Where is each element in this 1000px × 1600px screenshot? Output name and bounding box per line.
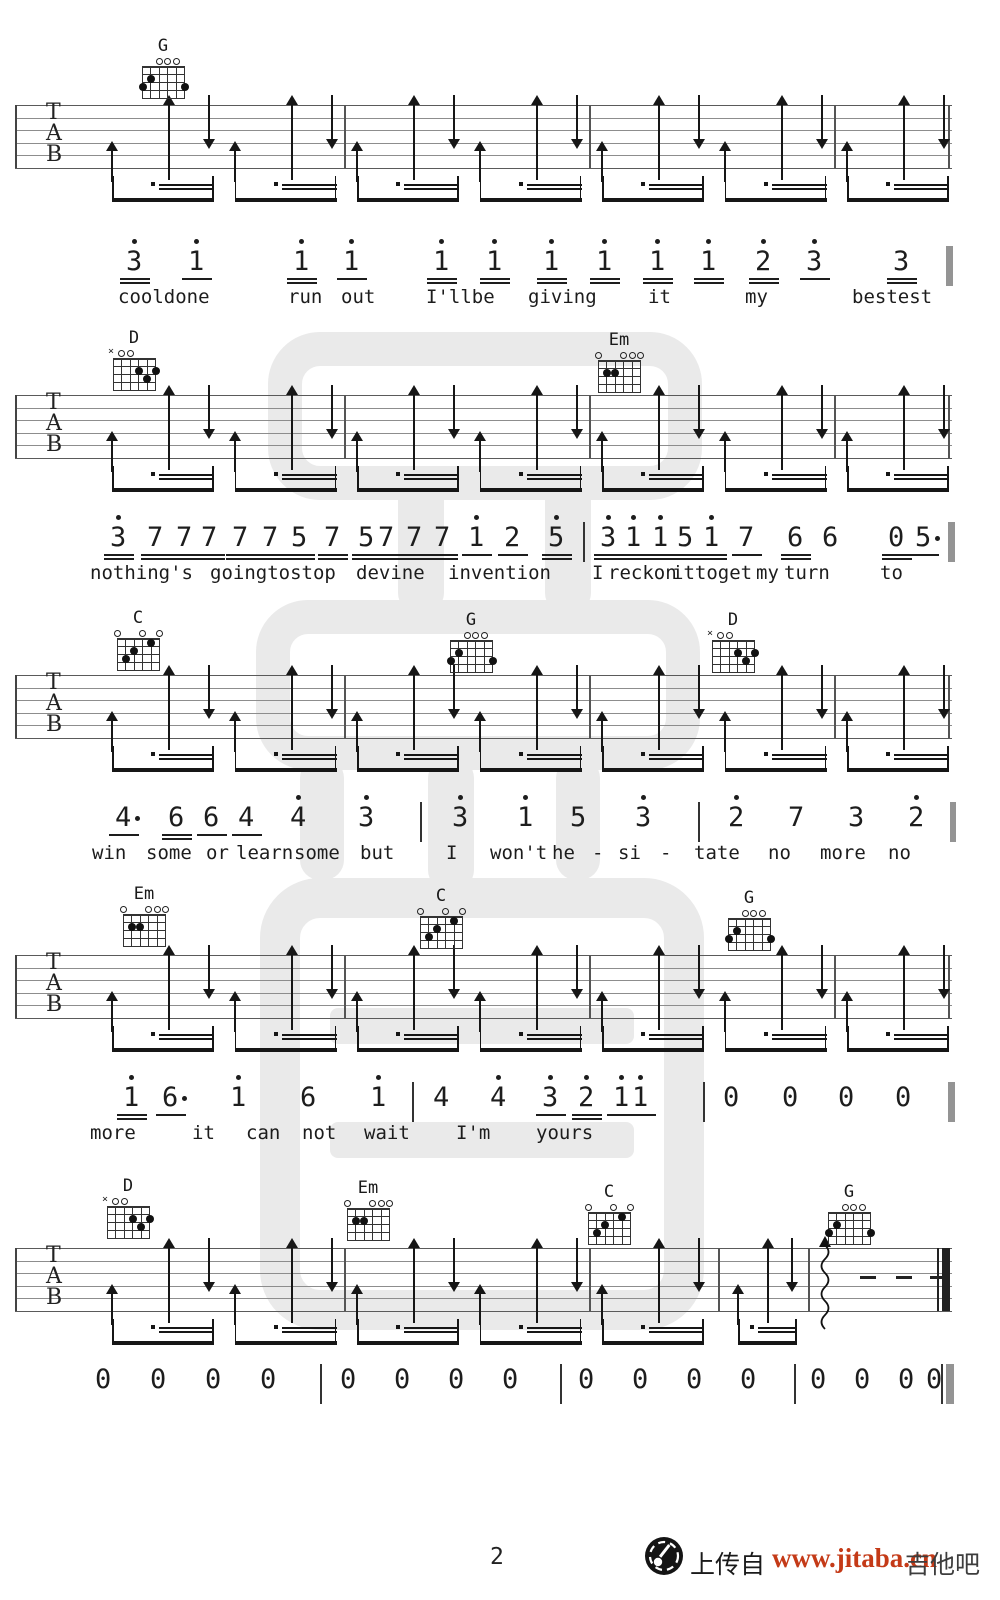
finger-dot (611, 369, 619, 377)
note-number: 3 (452, 804, 468, 831)
arrow-shaft (943, 945, 945, 992)
arrow-head (841, 711, 853, 721)
staff-line (15, 1248, 952, 1249)
lyric-word: I (446, 844, 457, 863)
beam-secondary (282, 1034, 337, 1036)
beam-secondary (772, 188, 827, 190)
fret-line (347, 1232, 390, 1233)
note-number: 0 (838, 1084, 854, 1111)
note-number: 1 (543, 248, 559, 275)
arrow-shaft (413, 672, 415, 750)
beat-underline (537, 278, 567, 280)
down-strum-arrow-icon (938, 95, 950, 149)
chord-label: D (107, 1178, 149, 1195)
fret-line (117, 646, 160, 647)
note-number: 0 (686, 1366, 702, 1393)
beat-underline (572, 1118, 602, 1120)
finger-dot (601, 1221, 609, 1229)
beam-secondary (649, 184, 704, 186)
duration-dot (182, 1096, 187, 1101)
beam-bottom (112, 198, 214, 202)
open-string-icon (595, 352, 602, 359)
octave-dot (496, 1075, 501, 1080)
measure-barline (344, 955, 346, 1018)
arrow-shaft (331, 945, 333, 992)
finger-dot (455, 649, 463, 657)
beat-underline (318, 558, 348, 560)
fret-line (123, 946, 166, 947)
finger-dot (146, 1215, 154, 1223)
chord-diagram-g: G (728, 890, 770, 952)
beam-secondary (282, 754, 337, 756)
beat-underline (909, 554, 939, 556)
open-string-icon (139, 630, 146, 637)
open-string-icon (112, 1198, 119, 1205)
rhythm-dot (274, 1325, 278, 1329)
up-strum-arrow-icon (286, 385, 298, 470)
beam-bottom (602, 1048, 704, 1052)
arrow-head (326, 989, 338, 999)
chord-diagram-c: C (420, 888, 462, 950)
beam-secondary (758, 1327, 797, 1329)
arrow-shaft (168, 952, 170, 1030)
fret-line (598, 392, 641, 393)
beam-secondary (159, 1034, 214, 1036)
arrow-shaft (168, 672, 170, 750)
up-strum-arrow-icon (286, 945, 298, 1030)
down-strum-arrow-icon (693, 665, 705, 719)
staff-line (15, 105, 952, 106)
rhythm-dot (519, 182, 523, 186)
note-number: 5 (291, 524, 307, 551)
chord-diagram-d: D× (107, 1178, 149, 1240)
down-strum-arrow-icon (816, 385, 828, 439)
arrow-shaft (331, 95, 333, 142)
fret-line (123, 914, 166, 916)
note-number: 0 (502, 1366, 518, 1393)
beam-secondary (159, 1327, 214, 1329)
staff-line (15, 688, 952, 689)
note-number: 0 (632, 1366, 648, 1393)
arrow-head (693, 709, 705, 719)
open-string-icon (156, 630, 163, 637)
rhythm-dot (274, 752, 278, 756)
chord-diagram-em: Em (123, 886, 165, 948)
beat-underline (120, 282, 150, 284)
arrow-shaft (791, 1238, 793, 1285)
fret-line (712, 664, 755, 665)
note-number: 3 (635, 804, 651, 831)
note-number: 4 (490, 1084, 506, 1111)
note-number: 1 (632, 1084, 648, 1111)
octave-dot (709, 515, 714, 520)
site-name: 吉他吧 (905, 1545, 980, 1581)
octave-dot (655, 239, 660, 244)
beat-underline (462, 554, 492, 556)
up-strum-arrow-icon (531, 665, 543, 750)
beat-underline (120, 278, 150, 280)
beam-secondary (649, 478, 704, 480)
up-strum-arrow-icon (531, 945, 543, 1030)
arrow-shaft (821, 385, 823, 432)
arrow-shaft (781, 672, 783, 750)
beat-underline (619, 558, 649, 560)
arrow-shaft (291, 392, 293, 470)
arrow-head (938, 139, 950, 149)
finger-dot (137, 1223, 145, 1231)
open-string-icon (120, 906, 127, 913)
measure-barline (344, 675, 346, 738)
rhythm-dot (641, 1032, 645, 1036)
fret-line (142, 66, 185, 68)
chord-diagram-g: G (828, 1184, 870, 1246)
note-number: 0 (810, 1366, 826, 1393)
chord-label: C (117, 610, 159, 627)
up-strum-arrow-icon (776, 665, 788, 750)
beam-secondary (282, 1327, 337, 1329)
arrow-head (693, 1282, 705, 1292)
rhythm-dot (641, 752, 645, 756)
finger-dot (767, 935, 775, 943)
note-number: 0 (888, 524, 904, 551)
line-end-barline (946, 1364, 954, 1404)
finger-dot (618, 1213, 626, 1221)
arrow-head (719, 711, 731, 721)
arrow-shaft (453, 385, 455, 432)
beat-underline (104, 558, 134, 560)
open-string-icon (459, 908, 466, 915)
arrow-head (693, 139, 705, 149)
arrow-head (448, 1282, 460, 1292)
arrow-head (898, 945, 910, 955)
beam-secondary (649, 1034, 704, 1036)
arrow-head (351, 431, 363, 441)
chord-diagram-d: D× (712, 612, 754, 674)
up-strum-arrow-icon (408, 1238, 420, 1323)
beat-underline (337, 278, 367, 280)
lyric-word: some (146, 844, 192, 863)
note-number: 0 (854, 1366, 870, 1393)
beat-underline (697, 554, 727, 556)
beam-secondary (894, 1034, 949, 1036)
tab-clef-letter: B (46, 1287, 62, 1309)
arrow-head (776, 665, 788, 675)
fret-line (728, 918, 771, 920)
staff-left-barline (15, 1248, 17, 1311)
arrow-head (898, 95, 910, 105)
beam-bottom (480, 768, 582, 772)
beat-underline (781, 554, 811, 556)
fret-line (588, 1220, 631, 1221)
rhythm-dot (750, 1325, 754, 1329)
fret-line (828, 1244, 871, 1245)
note-number: 0 (723, 1084, 739, 1111)
down-strum-arrow-icon (326, 1238, 338, 1292)
arrow-head (286, 665, 298, 675)
note-number: 0 (394, 1366, 410, 1393)
up-strum-arrow-icon (762, 1238, 774, 1323)
octave-dot (236, 1075, 241, 1080)
tab-clef-letter: B (46, 714, 62, 736)
arrow-shaft (698, 95, 700, 142)
lyric-word: more (820, 844, 866, 863)
lyric-word: nothing's (90, 564, 193, 583)
up-strum-arrow-icon (286, 665, 298, 750)
rhythm-dot (274, 472, 278, 476)
measure-barline (589, 1248, 591, 1311)
arrow-head (351, 1284, 363, 1294)
octave-dot (554, 515, 559, 520)
arrow-shaft (943, 95, 945, 142)
beam-secondary (159, 474, 214, 476)
lyric-word: devine (356, 564, 425, 583)
arrow-shaft (903, 672, 905, 750)
beam-secondary (282, 758, 337, 760)
down-strum-arrow-icon (203, 665, 215, 719)
down-strum-arrow-icon (693, 95, 705, 149)
up-strum-arrow-icon (776, 385, 788, 470)
arrow-head (732, 1284, 744, 1294)
arrow-shaft (576, 1238, 578, 1285)
lyric-word: - (660, 844, 671, 863)
note-number: 3 (358, 804, 374, 831)
down-strum-arrow-icon (448, 385, 460, 439)
note-number: 3 (600, 524, 616, 551)
note-number: 7 (262, 524, 278, 551)
arrow-head (408, 665, 420, 675)
beam-bottom (235, 488, 337, 492)
final-thick-barline (942, 1248, 950, 1311)
arrow-head (571, 1282, 583, 1292)
lyric-word: won't (490, 844, 547, 863)
arrow-head (408, 95, 420, 105)
beam-bottom (112, 768, 214, 772)
rhythm-dot (396, 1325, 400, 1329)
note-number: 1 (625, 524, 641, 551)
arrow-shaft (698, 1238, 700, 1285)
line-end-barline (946, 246, 953, 286)
octave-dot (492, 239, 497, 244)
note-number: 6 (787, 524, 803, 551)
arrow-shaft (168, 102, 170, 180)
staff-line (15, 395, 952, 396)
note-number: 0 (448, 1366, 464, 1393)
beat-underline (626, 1114, 656, 1116)
note-number: 1 (370, 1084, 386, 1111)
arrow-shaft (168, 1245, 170, 1323)
up-strum-arrow-icon (898, 665, 910, 750)
fret-line (420, 948, 463, 949)
octave-dot (914, 795, 919, 800)
measure-barline (589, 675, 591, 738)
arrow-head (286, 95, 298, 105)
arrow-head (448, 139, 460, 149)
arrow-head (898, 665, 910, 675)
beat-underline (498, 554, 528, 556)
octave-dot (812, 239, 817, 244)
beam-bottom (112, 488, 214, 492)
arrow-head (286, 945, 298, 955)
beam-bottom (112, 1048, 214, 1052)
fret-line (107, 1206, 150, 1208)
down-strum-arrow-icon (693, 945, 705, 999)
arrow-head (351, 141, 363, 151)
arrow-head (351, 711, 363, 721)
arrow-shaft (413, 102, 415, 180)
lyric-word: bestest (852, 288, 932, 307)
measure-barline (583, 522, 585, 562)
line-end-barline (948, 1082, 955, 1122)
rest-dash (860, 1276, 876, 1279)
fret-line (598, 384, 641, 385)
beam-bottom (602, 1341, 704, 1345)
up-strum-arrow-icon (531, 1238, 543, 1323)
open-string-icon (759, 910, 766, 917)
finger-dot (751, 649, 759, 657)
note-number: 7 (201, 524, 217, 551)
arrow-head (163, 385, 175, 395)
arrow-shaft (903, 102, 905, 180)
arrow-head (841, 141, 853, 151)
arrow-head (474, 711, 486, 721)
measure-barline (412, 1082, 414, 1122)
arrow-head (326, 709, 338, 719)
arrow-head (653, 385, 665, 395)
beat-underline (590, 278, 620, 280)
rhythm-dot (886, 752, 890, 756)
beam-secondary (282, 478, 337, 480)
beam-bottom (725, 488, 827, 492)
beam-secondary (159, 478, 214, 480)
open-string-icon (629, 352, 636, 359)
fret-line (712, 648, 755, 649)
measure-barline (941, 1364, 943, 1404)
note-number: 0 (95, 1366, 111, 1393)
note-number: 1 (293, 248, 309, 275)
down-strum-arrow-icon (938, 665, 950, 719)
note-number: 1 (596, 248, 612, 275)
note-number: 3 (542, 1084, 558, 1111)
beat-underline (643, 278, 673, 280)
lyric-word: no (768, 844, 791, 863)
finger-dot (867, 1229, 875, 1237)
fret-line (828, 1212, 871, 1214)
fret-line (347, 1240, 390, 1241)
arrow-head (408, 1238, 420, 1248)
arrow-shaft (781, 952, 783, 1030)
up-strum-arrow-icon (898, 385, 910, 470)
arrow-shaft (576, 385, 578, 432)
lyric-word: reckon (608, 564, 677, 583)
octave-dot (606, 515, 611, 520)
finger-dot (825, 1229, 833, 1237)
lyric-word: goingtostop (210, 564, 336, 583)
arrow-head (938, 989, 950, 999)
arrow-shaft (658, 952, 660, 1030)
fret-line (107, 1222, 150, 1223)
octave-dot (439, 239, 444, 244)
octave-dot (349, 239, 354, 244)
staff-line (15, 1273, 952, 1274)
up-strum-arrow-icon (163, 1238, 175, 1323)
chord-diagram-em: Em (598, 332, 640, 394)
lyric-word: can (246, 1124, 280, 1143)
staff-line (15, 130, 952, 131)
beam-secondary (282, 184, 337, 186)
beam-secondary (282, 188, 337, 190)
chord-label: G (728, 890, 770, 907)
up-strum-arrow-icon (653, 945, 665, 1030)
rhythm-dot (641, 472, 645, 476)
beam-secondary (282, 474, 337, 476)
open-string-icon (850, 1204, 857, 1211)
chord-label: Em (598, 332, 640, 349)
beat-underline (256, 554, 286, 556)
measure-barline (834, 955, 836, 1018)
beat-underline (887, 282, 917, 284)
note-number: 7 (232, 524, 248, 551)
arrow-head (203, 1282, 215, 1292)
open-string-icon (164, 58, 171, 65)
final-thin-barline (937, 1248, 939, 1311)
down-strum-arrow-icon (326, 95, 338, 149)
fret-line (347, 1208, 390, 1210)
arrow-head (719, 991, 731, 1001)
staff-line (15, 955, 952, 956)
up-strum-arrow-icon (408, 665, 420, 750)
fret-line (598, 360, 641, 362)
fret-line (107, 1214, 150, 1215)
note-number: 7 (378, 524, 394, 551)
staff-line (15, 408, 952, 409)
note-number: 3 (848, 804, 864, 831)
beam-secondary (527, 754, 582, 756)
note-number: 3 (806, 248, 822, 275)
rhythm-dot (396, 182, 400, 186)
octave-dot (132, 239, 137, 244)
beat-underline (195, 554, 225, 556)
lyric-word: but (360, 844, 394, 863)
arrow-shaft (658, 672, 660, 750)
note-number: 6 (300, 1084, 316, 1111)
arrow-shaft (291, 1245, 293, 1323)
arrow-shaft (208, 665, 210, 712)
arrow-shaft (781, 392, 783, 470)
note-number: 7 (147, 524, 163, 551)
beam-bottom (112, 1341, 214, 1345)
note-number: 6 (162, 1084, 178, 1111)
staff-left-barline (15, 105, 17, 168)
open-string-icon (585, 1204, 592, 1211)
note-number: 1 (613, 1084, 629, 1111)
beat-underline (428, 558, 458, 560)
beat-underline (536, 1114, 566, 1116)
beam-bottom (725, 768, 827, 772)
note-number: 5 (677, 524, 693, 551)
arrow-head (474, 431, 486, 441)
down-strum-arrow-icon (448, 1238, 460, 1292)
staff-line (15, 980, 952, 981)
note-number: 1 (486, 248, 502, 275)
up-strum-arrow-icon (408, 945, 420, 1030)
note-number: 7 (434, 524, 450, 551)
beam-secondary (282, 1331, 337, 1333)
octave-dot (641, 795, 646, 800)
note-number: 4 (238, 804, 254, 831)
octave-dot (474, 515, 479, 520)
lyric-word: more (90, 1124, 136, 1143)
chord-diagram-c: C (588, 1184, 630, 1246)
